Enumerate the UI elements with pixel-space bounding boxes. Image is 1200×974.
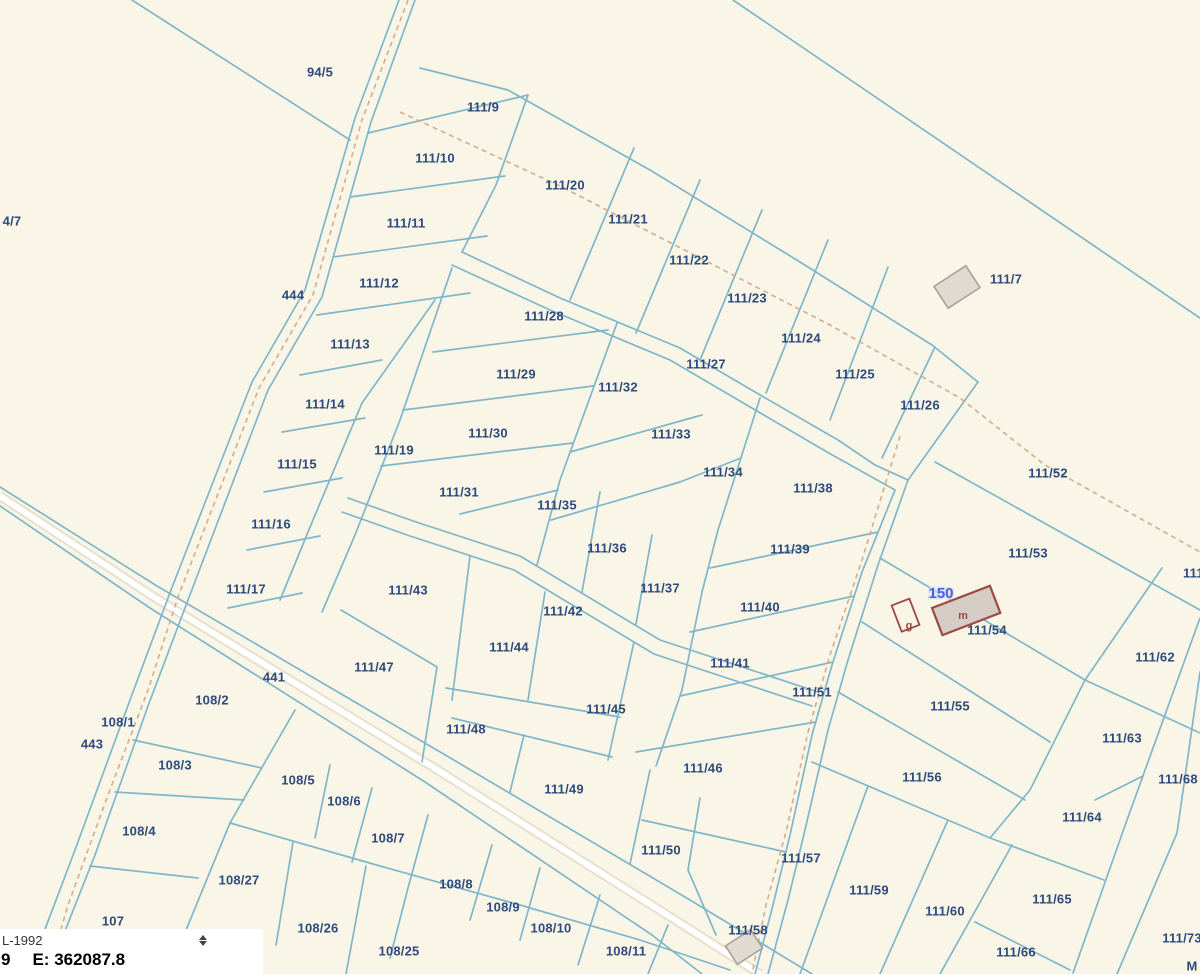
parcel-label: 111/16 bbox=[251, 517, 291, 532]
building-near-111-7 bbox=[934, 266, 980, 309]
parcel-label: 111/25 bbox=[835, 367, 875, 382]
parcel-label: 111/15 bbox=[277, 457, 317, 472]
parcel-label: 111/51 bbox=[792, 685, 832, 700]
parcel-label: 111/34 bbox=[703, 465, 743, 480]
parcel-label: 111/22 bbox=[669, 253, 709, 268]
parcel-label: 111/57 bbox=[781, 851, 821, 866]
parcel-label: 111/50 bbox=[641, 843, 681, 858]
parcel-label: 111/19 bbox=[374, 443, 414, 458]
parcel-label: 111/45 bbox=[586, 702, 626, 717]
parcel-label: 111/26 bbox=[900, 398, 940, 413]
parcel-label: 111/27 bbox=[686, 357, 726, 372]
parcel-label: 107 bbox=[102, 914, 124, 929]
building-letter-label: g bbox=[906, 620, 913, 632]
parcel-label: 111/33 bbox=[651, 427, 691, 442]
parcel-label: 111/66 bbox=[996, 945, 1036, 960]
parcel-label: 111/37 bbox=[640, 581, 680, 596]
parcel-label: 111/11 bbox=[387, 216, 426, 231]
parcel-label: 111/68 bbox=[1158, 772, 1198, 787]
parcel-label: 94/5 bbox=[307, 65, 333, 80]
parcel-label: 111/62 bbox=[1135, 650, 1175, 665]
parcel-label: 111/12 bbox=[359, 276, 399, 291]
parcel-label: 111/54 bbox=[967, 623, 1007, 638]
parcel-label: 111/36 bbox=[587, 541, 627, 556]
easting-value: E: 362087.8 bbox=[32, 950, 125, 969]
parcel-label: 111/21 bbox=[608, 212, 648, 227]
parcel-label: 108/8 bbox=[439, 877, 473, 892]
parcel-label: 111/9 bbox=[467, 100, 499, 115]
parcel-label-layer: 94/5111/9111/104/7111/20111/21111/11111/… bbox=[3, 65, 1200, 974]
parcel-label: 111/38 bbox=[793, 481, 833, 496]
parcel-label: 111/6 bbox=[1183, 566, 1200, 581]
parcel-label: 111/59 bbox=[849, 883, 889, 898]
parcel-label: 111/41 bbox=[710, 656, 750, 671]
parcel-label: 111/47 bbox=[354, 660, 394, 675]
parcel-label: 111/39 bbox=[770, 542, 810, 557]
parcel-label: 111/24 bbox=[781, 331, 821, 346]
parcel-label: 111/44 bbox=[489, 640, 529, 655]
parcel-label: 108/1 bbox=[101, 715, 135, 730]
northing-fragment: 9 bbox=[1, 950, 10, 969]
chevron-down-icon bbox=[199, 941, 207, 946]
coordinate-readout: 9E: 362087.8 bbox=[1, 950, 125, 970]
parcel-label: 111/58 bbox=[728, 923, 768, 938]
parcel-label: 108/9 bbox=[486, 900, 520, 915]
parcel-label: 111/49 bbox=[544, 782, 584, 797]
parcel-label: 111/52 bbox=[1028, 466, 1068, 481]
parcel-boundaries bbox=[90, 0, 1200, 974]
parcel-label: 111/48 bbox=[446, 722, 486, 737]
parcel-label: 111/53 bbox=[1008, 546, 1048, 561]
chevron-up-icon bbox=[199, 935, 207, 940]
parcel-label: 111/65 bbox=[1032, 892, 1072, 907]
cadastral-map-canvas[interactable]: 94/5111/9111/104/7111/20111/21111/11111/… bbox=[0, 0, 1200, 974]
map-viewer: 94/5111/9111/104/7111/20111/21111/11111/… bbox=[0, 0, 1200, 974]
parcel-label: 443 bbox=[81, 737, 103, 752]
dashed-boundaries bbox=[48, 0, 1200, 974]
parcel-label: 111/14 bbox=[305, 397, 345, 412]
parcel-label: 111/29 bbox=[496, 367, 536, 382]
parcel-label: 111/56 bbox=[902, 770, 942, 785]
parcel-label: 111/55 bbox=[930, 699, 970, 714]
parcel-label: 108/4 bbox=[122, 824, 156, 839]
parcel-label: 108/25 bbox=[379, 944, 420, 959]
parcel-label: 111/23 bbox=[727, 291, 767, 306]
coordinate-statusbar: L-1992 9E: 362087.8 bbox=[0, 929, 263, 974]
address-label: 150 bbox=[928, 585, 953, 602]
parcel-label: 108/6 bbox=[327, 794, 361, 809]
parcel-label: 111/32 bbox=[598, 380, 638, 395]
parcel-label: 111/10 bbox=[415, 151, 455, 166]
parcel-label: 111/40 bbox=[740, 600, 780, 615]
parcel-label: 111/7 bbox=[990, 272, 1022, 287]
parcel-label: 108/5 bbox=[281, 773, 315, 788]
crs-label: L-1992 bbox=[2, 933, 42, 948]
parcel-label: 111/46 bbox=[683, 761, 723, 776]
road-network bbox=[0, 0, 1200, 974]
parcel-label: 108/2 bbox=[195, 693, 229, 708]
parcel-label: 108/7 bbox=[371, 831, 405, 846]
parcel-label: 111/13 bbox=[330, 337, 370, 352]
building-letter-label: m bbox=[958, 610, 968, 622]
parcel-label: 111/43 bbox=[388, 583, 428, 598]
parcel-label: 111/30 bbox=[468, 426, 508, 441]
parcel-label: 108/11 bbox=[606, 944, 646, 959]
parcel-label: 441 bbox=[263, 670, 285, 685]
parcel-label: 111/42 bbox=[543, 604, 583, 619]
parcel-label: 4/7 bbox=[3, 214, 22, 229]
parcel-label: 108/3 bbox=[158, 758, 192, 773]
parcel-label: 111/28 bbox=[524, 309, 564, 324]
parcel-label: 108/27 bbox=[219, 873, 260, 888]
parcel-label: 111/20 bbox=[545, 178, 585, 193]
parcel-label: 111/73 bbox=[1162, 931, 1200, 946]
parcel-label: 111/35 bbox=[537, 498, 577, 513]
crs-spinner-icon[interactable] bbox=[199, 935, 207, 946]
parcel-label: 111/63 bbox=[1102, 731, 1142, 746]
parcel-label: 111/60 bbox=[925, 904, 965, 919]
parcel-label: M bbox=[1186, 959, 1197, 974]
parcel-label: 444 bbox=[282, 288, 305, 303]
parcel-label: 111/17 bbox=[226, 582, 266, 597]
parcel-label: 111/31 bbox=[439, 485, 479, 500]
parcel-label: 108/10 bbox=[531, 921, 572, 936]
parcel-label: 111/64 bbox=[1062, 810, 1102, 825]
parcel-label: 108/26 bbox=[298, 921, 339, 936]
